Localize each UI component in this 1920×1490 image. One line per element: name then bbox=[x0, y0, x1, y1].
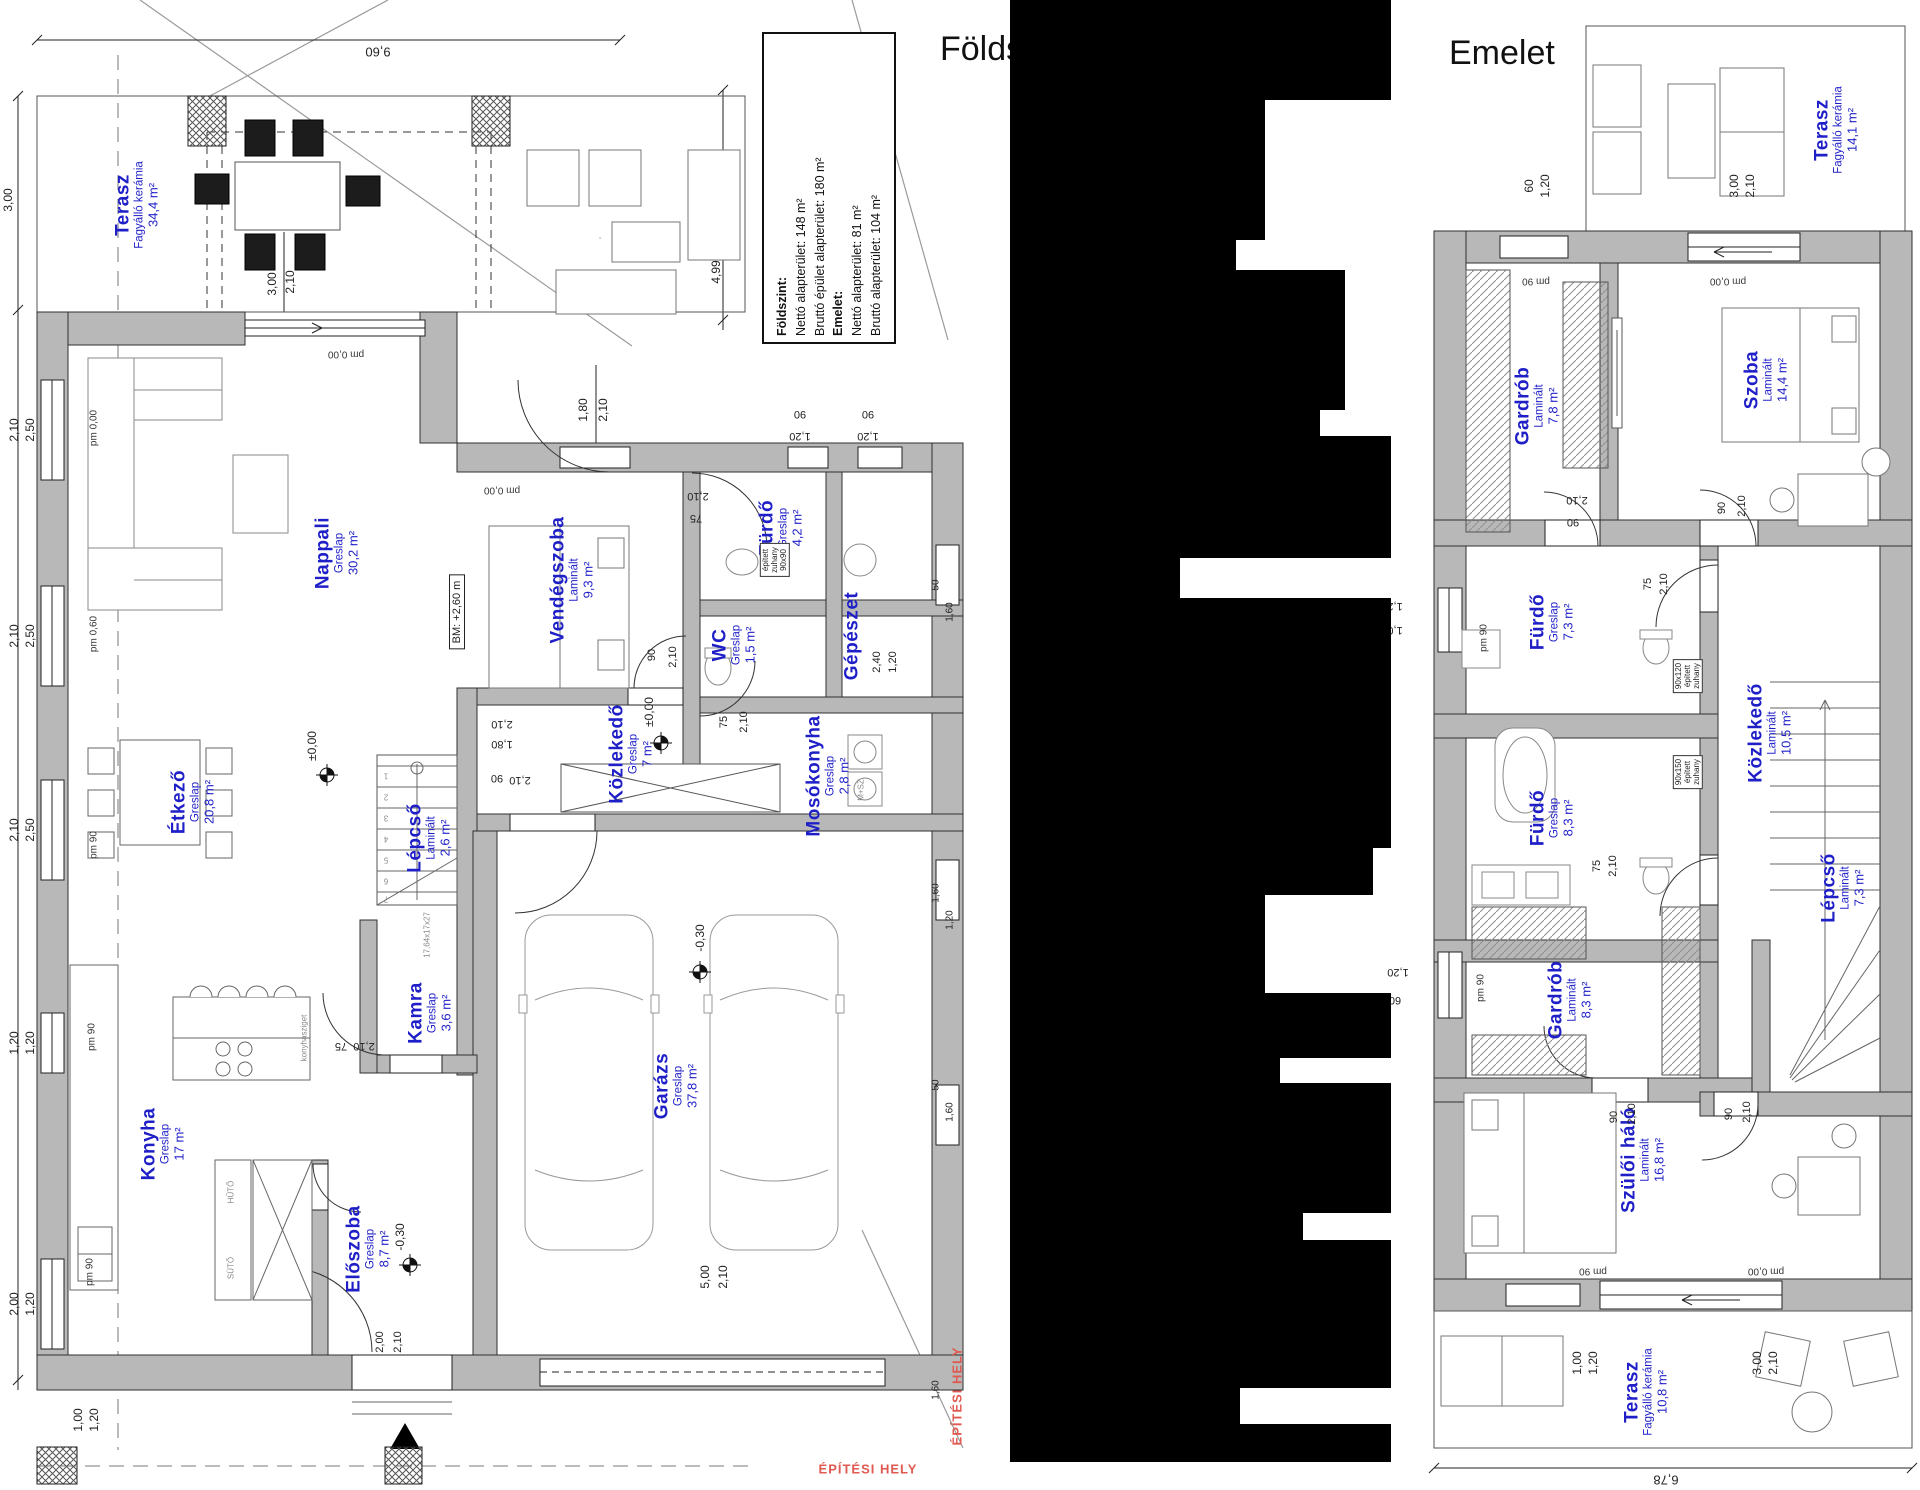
summary-line: Földszint: bbox=[775, 277, 789, 336]
summary-line: Nettó alapterület: 148 m² bbox=[794, 198, 808, 336]
area-summary-box: Földszint: Nettó alapterület: 148 m² Bru… bbox=[762, 32, 896, 344]
stairs-upper bbox=[1770, 682, 1880, 1082]
lower-terrace-furniture bbox=[1441, 1332, 1898, 1432]
pergola-post bbox=[188, 96, 226, 146]
summary-line: Bruttó alapterület: 104 m² bbox=[869, 195, 883, 336]
site-post bbox=[37, 1447, 77, 1484]
garage-cars bbox=[519, 915, 844, 1250]
fixtures-upper bbox=[1462, 630, 1672, 905]
bedroom-furniture bbox=[1722, 308, 1890, 526]
summary-line: Bruttó épület alapterület: 180 m² bbox=[812, 157, 826, 336]
floorplan-page: Földszint Emelet Földszint: Nettó alapte… bbox=[0, 0, 1920, 1490]
upper-terrace-furniture bbox=[1593, 65, 1784, 196]
wardrobes bbox=[1466, 270, 1700, 1075]
stairs-ground bbox=[377, 755, 457, 905]
floorplan-drawing bbox=[0, 0, 1920, 1490]
summary-line: Emelet: bbox=[831, 291, 845, 336]
corridor-cabinet bbox=[561, 764, 780, 812]
entry-steps bbox=[352, 1402, 452, 1414]
entry-marker bbox=[390, 1423, 420, 1449]
upper-floor-title: Emelet bbox=[1449, 34, 1555, 73]
parent-bedroom-furniture bbox=[1464, 1093, 1860, 1253]
pergola-post bbox=[472, 96, 510, 146]
summary-line: Nettó alapterület: 81 m² bbox=[850, 205, 864, 336]
site-post bbox=[385, 1447, 422, 1484]
dining-table bbox=[88, 740, 232, 858]
kitchen bbox=[70, 965, 312, 1300]
sofa bbox=[88, 358, 288, 610]
guest-bed bbox=[489, 526, 629, 688]
outdoor-lounge-set bbox=[527, 150, 740, 314]
